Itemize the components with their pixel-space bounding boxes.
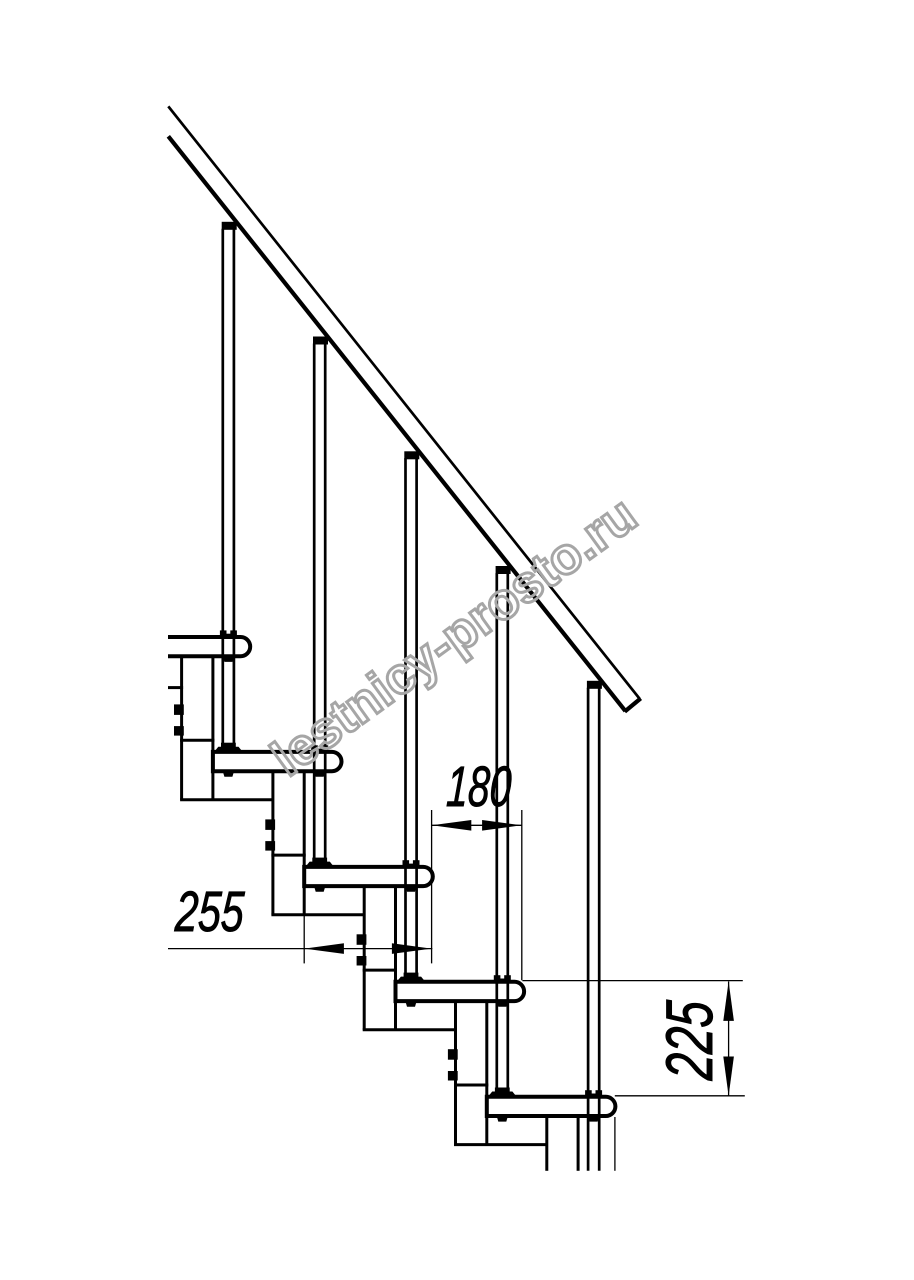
svg-text:225: 225 xyxy=(654,998,728,1082)
svg-text:180: 180 xyxy=(445,756,513,819)
svg-text:255: 255 xyxy=(173,879,246,943)
